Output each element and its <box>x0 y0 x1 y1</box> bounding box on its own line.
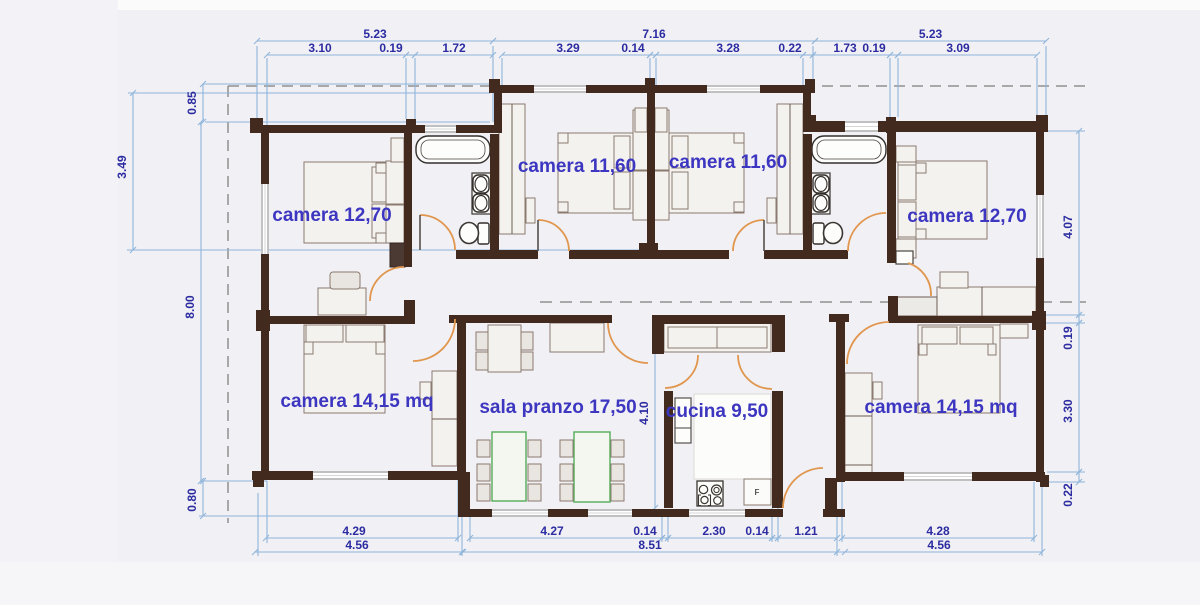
svg-text:3.09: 3.09 <box>946 41 970 55</box>
svg-text:3.28: 3.28 <box>716 41 740 55</box>
svg-text:0.14: 0.14 <box>745 524 769 538</box>
svg-text:4.07: 4.07 <box>1061 215 1075 239</box>
svg-text:3.49: 3.49 <box>115 155 129 179</box>
svg-text:4.29: 4.29 <box>342 524 366 538</box>
svg-text:5.23: 5.23 <box>363 27 387 41</box>
svg-text:1.21: 1.21 <box>794 524 818 538</box>
svg-text:camera 14,15 mq: camera 14,15 mq <box>280 391 433 412</box>
svg-text:0.19: 0.19 <box>862 41 886 55</box>
svg-text:7.16: 7.16 <box>642 27 666 41</box>
svg-text:1.72: 1.72 <box>442 41 466 55</box>
svg-text:3.29: 3.29 <box>556 41 580 55</box>
svg-text:0.85: 0.85 <box>185 91 199 115</box>
svg-text:camera 12,70: camera 12,70 <box>272 205 391 226</box>
svg-text:0.80: 0.80 <box>185 488 199 512</box>
svg-text:0.14: 0.14 <box>621 41 645 55</box>
svg-text:0.22: 0.22 <box>778 41 802 55</box>
svg-text:4.28: 4.28 <box>926 524 950 538</box>
svg-text:sala pranzo 17,50: sala pranzo 17,50 <box>479 397 636 418</box>
svg-text:0.22: 0.22 <box>1061 483 1075 507</box>
svg-text:cucina 9,50: cucina 9,50 <box>666 401 768 422</box>
svg-text:4.56: 4.56 <box>927 538 951 552</box>
svg-text:1.73: 1.73 <box>833 41 857 55</box>
svg-text:4.27: 4.27 <box>540 524 564 538</box>
svg-text:4.10: 4.10 <box>637 401 651 425</box>
svg-text:2.30: 2.30 <box>702 524 726 538</box>
svg-text:5.23: 5.23 <box>919 27 943 41</box>
svg-text:camera 14,15 mq: camera 14,15 mq <box>864 397 1017 418</box>
svg-text:3.30: 3.30 <box>1061 399 1075 423</box>
svg-text:F: F <box>755 488 760 497</box>
svg-text:8.00: 8.00 <box>183 295 197 319</box>
svg-text:3.10: 3.10 <box>308 41 332 55</box>
svg-text:4.56: 4.56 <box>345 538 369 552</box>
svg-text:0.14: 0.14 <box>633 524 657 538</box>
svg-text:camera 11,60: camera 11,60 <box>669 152 787 173</box>
svg-text:camera 12,70: camera 12,70 <box>907 206 1026 227</box>
svg-text:0.19: 0.19 <box>1061 326 1075 350</box>
svg-text:camera 11,60: camera 11,60 <box>518 156 636 177</box>
svg-text:0.19: 0.19 <box>379 41 403 55</box>
svg-text:8.51: 8.51 <box>638 538 662 552</box>
